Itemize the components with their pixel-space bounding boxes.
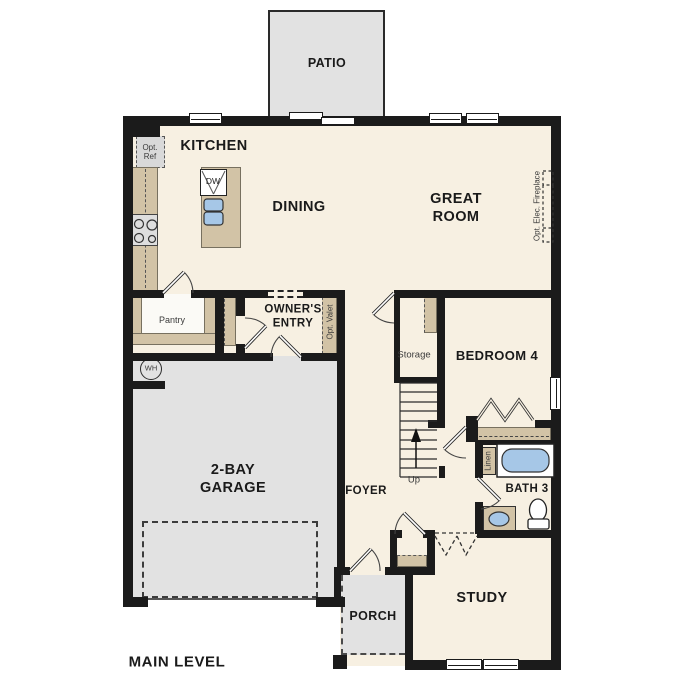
- garage-entry-door: [271, 336, 301, 357]
- kitchen-sink: [204, 199, 223, 225]
- label-opt-elec-fireplace: Opt. Elec. Fireplace: [532, 171, 541, 241]
- up-arrow: [411, 428, 421, 468]
- bifold-closet-doors: [477, 400, 533, 420]
- stairs: [400, 383, 437, 477]
- room-label-owners-entry: OWNER'S ENTRY: [264, 303, 321, 332]
- pantry-door: [163, 272, 193, 293]
- cooktop-burners: [135, 220, 158, 243]
- front-door: [350, 549, 380, 571]
- room-label-bedroom4: BEDROOM 4: [456, 348, 538, 364]
- room-label-patio: PATIO: [308, 56, 346, 72]
- label-linen: Linen: [483, 451, 492, 471]
- room-label-bath3: BATH 3: [505, 482, 548, 496]
- bath-door: [478, 478, 500, 509]
- room-label-great-room: GREAT ROOM: [430, 190, 482, 226]
- label-up: Up: [408, 476, 420, 487]
- room-label-garage: 2-BAY GARAGE: [200, 461, 266, 497]
- label-pantry: Pantry: [159, 315, 185, 325]
- floor-plan: PATIO KITCHEN DINING GREAT ROOM OWNER'S …: [0, 0, 687, 687]
- label-dishwasher: DW: [206, 177, 220, 187]
- optional-fireplace: [543, 171, 553, 242]
- vanity-sink: [489, 512, 509, 526]
- room-label-study: STUDY: [456, 589, 507, 607]
- room-label-foyer: FOYER: [345, 484, 387, 498]
- room-label-dining: DINING: [272, 198, 325, 216]
- owners-entry-door: [245, 318, 266, 348]
- storage-door: [373, 293, 394, 323]
- optional-french-doors: [435, 533, 477, 555]
- toilet: [528, 499, 549, 529]
- bathtub: [497, 444, 554, 477]
- hall-door: [444, 427, 466, 458]
- room-label-kitchen: KITCHEN: [180, 137, 247, 155]
- plan-title: MAIN LEVEL: [129, 654, 226, 673]
- foyer-closet-door: [395, 513, 425, 534]
- label-opt-valet: Opt. Valet: [325, 305, 334, 340]
- label-storage: Storage: [397, 351, 430, 362]
- label-opt-ref: Opt. Ref: [142, 143, 157, 161]
- label-water-heater: WH: [145, 365, 158, 374]
- room-label-porch: PORCH: [349, 609, 396, 625]
